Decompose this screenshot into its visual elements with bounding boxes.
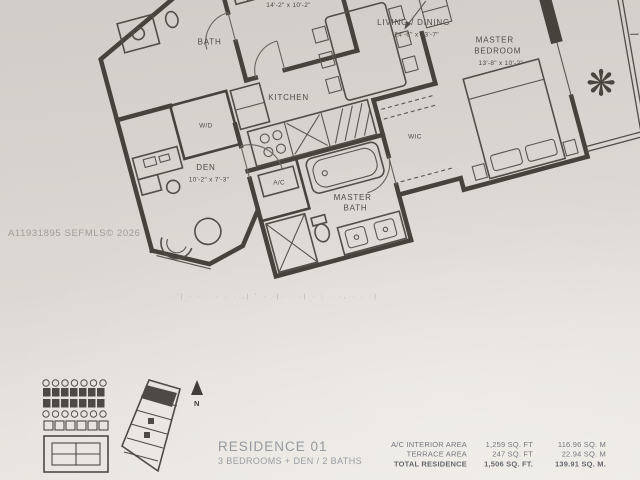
floorplan-drawing: ❋ BATH BEDROOM 2 14'-2" x 10'-2" W/D KIT… [90,0,640,306]
north-label: N [194,399,199,408]
plant-icon: ❋ [586,63,616,104]
area-table: A/C INTERIOR AREA 1,259 SQ. FT 116.96 SQ… [391,440,606,469]
area-row-label: TOTAL RESIDENCE [394,460,467,469]
area-row-sqft: 1,259 SQ. FT [486,440,534,449]
area-row-label: TERRACE AREA [407,450,467,459]
kitchen-counter-icon [230,57,376,168]
area-row-sqm: 139.91 SQ. M. [555,460,606,469]
site-plan-icon [43,380,108,472]
disclaimer-text: ·'| · · · · , · ,| ' · ·|· · ·| · ; · ·,… [172,293,378,300]
wall-pier [539,0,562,44]
room-label-kitchen: KITCHEN [268,93,309,102]
room-label-ac: A/C [273,179,285,186]
residence-subtitle: 3 BEDROOMS + DEN / 2 BATHS [218,456,362,466]
area-row-label: A/C INTERIOR AREA [391,440,467,449]
room-dims-den: 10'-2" x 7'-3" [189,176,230,183]
door-arcs [199,0,396,223]
room-label-master-bedroom-1: MASTER [476,36,514,45]
floorplan-svg: ❋ BATH BEDROOM 2 14'-2" x 10'-2" W/D KIT… [0,0,640,480]
area-row-sqft: 247 SQ. FT [492,450,533,459]
room-label-bath: BATH [198,38,222,47]
residence-title: RESIDENCE 01 [218,439,328,454]
room-label-master-bedroom-2: BEDROOM [474,46,521,55]
room-label-master-bath-1: MASTER [334,193,372,202]
room-dims-living: 24'-6" x 13'-7" [394,32,439,39]
mls-watermark: A11931895 SEFMLS© 2026 [8,228,141,239]
room-label-master-bath-2: BATH [344,203,368,212]
den-desk-icon [132,141,225,263]
room-label-wd: W/D [199,122,213,129]
bath-fixtures [117,8,183,53]
master-bath-fixtures [253,140,407,273]
building-keyplan-icon [122,380,180,471]
dining-table-icon [298,0,456,105]
floorplan-photo: ❋ BATH BEDROOM 2 14'-2" x 10'-2" W/D KIT… [0,0,640,480]
room-label-wic: WIC [408,134,422,141]
area-row-sqm: 22.94 SQ. M [562,450,606,459]
room-dims-bedroom2: 14'-2" x 10'-2" [266,2,311,9]
room-dims-master-bedroom: 13'-8" x 10'-2" [479,60,524,67]
room-label-living: LIVING / DINING [377,18,450,27]
north-arrow-icon: N [191,380,203,408]
room-label-den: DEN [196,163,215,172]
area-row-sqm: 116.96 SQ. M [558,440,606,449]
area-row-sqft: 1,506 SQ. FT. [484,460,533,469]
